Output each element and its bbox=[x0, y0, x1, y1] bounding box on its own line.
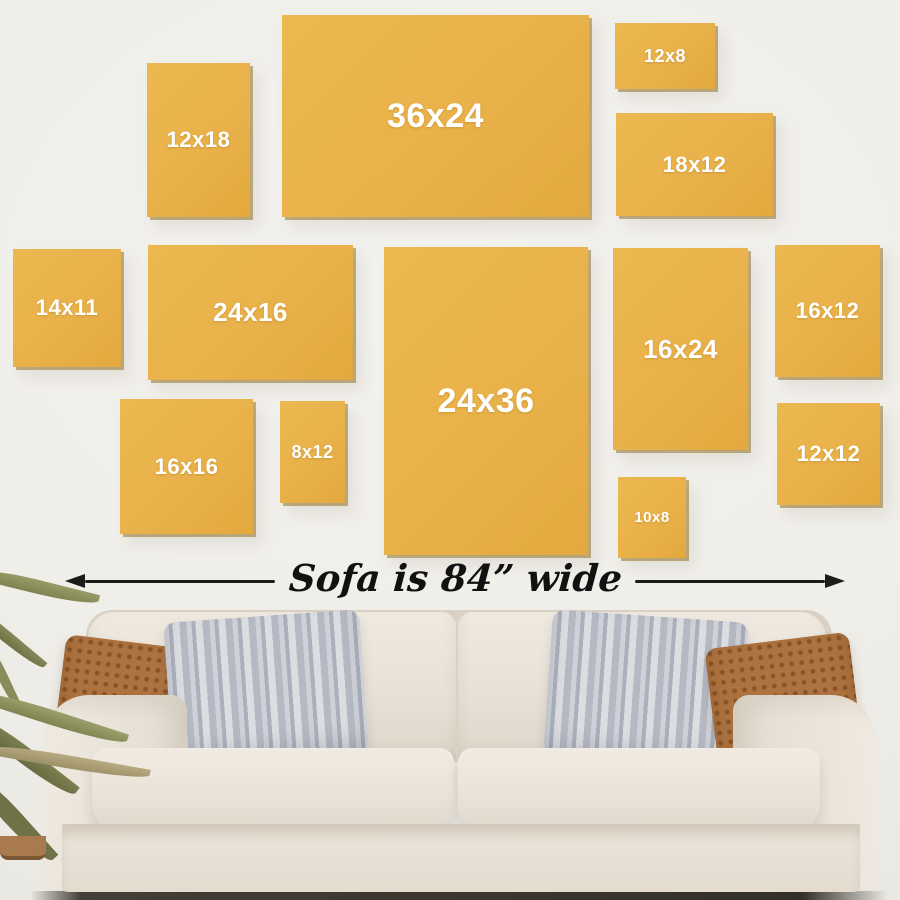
arrowhead-right-icon bbox=[825, 574, 845, 588]
frame-size-label: 12x8 bbox=[644, 46, 686, 67]
frame-size-label: 24x16 bbox=[213, 297, 288, 328]
frame-24x36: 24x36 bbox=[384, 247, 588, 555]
frame-24x16: 24x16 bbox=[148, 245, 353, 380]
frame-size-label: 12x18 bbox=[167, 127, 231, 153]
frame-12x8: 12x8 bbox=[615, 23, 715, 89]
frame-size-label: 16x24 bbox=[643, 334, 718, 365]
frame-10x8: 10x8 bbox=[618, 477, 686, 558]
frame-size-label: 10x8 bbox=[634, 509, 669, 526]
frame-18x12: 18x12 bbox=[616, 113, 773, 216]
frame-16x24: 16x24 bbox=[613, 248, 748, 450]
frame-size-label: 16x12 bbox=[796, 298, 860, 324]
frame-36x24: 36x24 bbox=[282, 15, 589, 217]
frame-size-label: 14x11 bbox=[36, 295, 98, 321]
plant-leaf bbox=[0, 566, 100, 609]
wall-art-size-guide: 12x18 36x24 12x8 18x12 14x11 24x16 24x36… bbox=[0, 0, 900, 900]
sofa-seat-cushion-right bbox=[458, 748, 820, 832]
frame-12x18: 12x18 bbox=[147, 63, 250, 217]
frame-16x12: 16x12 bbox=[775, 245, 880, 377]
frame-size-label: 36x24 bbox=[387, 97, 484, 136]
frame-size-label: 12x12 bbox=[797, 441, 861, 467]
measure-line-right bbox=[635, 580, 825, 583]
sofa-width-text: Sofa is 84” wide bbox=[287, 556, 623, 606]
frame-size-label: 8x12 bbox=[291, 442, 333, 463]
frame-12x12: 12x12 bbox=[777, 403, 880, 505]
frame-size-label: 16x16 bbox=[155, 454, 219, 480]
plant-leaf bbox=[0, 601, 47, 672]
frame-size-label: 18x12 bbox=[663, 152, 727, 178]
frame-16x16: 16x16 bbox=[120, 399, 253, 534]
plant-pot bbox=[0, 836, 46, 860]
plant bbox=[0, 550, 200, 900]
frame-size-label: 24x36 bbox=[437, 382, 534, 421]
frame-14x11: 14x11 bbox=[13, 249, 121, 367]
frame-8x12: 8x12 bbox=[280, 401, 345, 503]
